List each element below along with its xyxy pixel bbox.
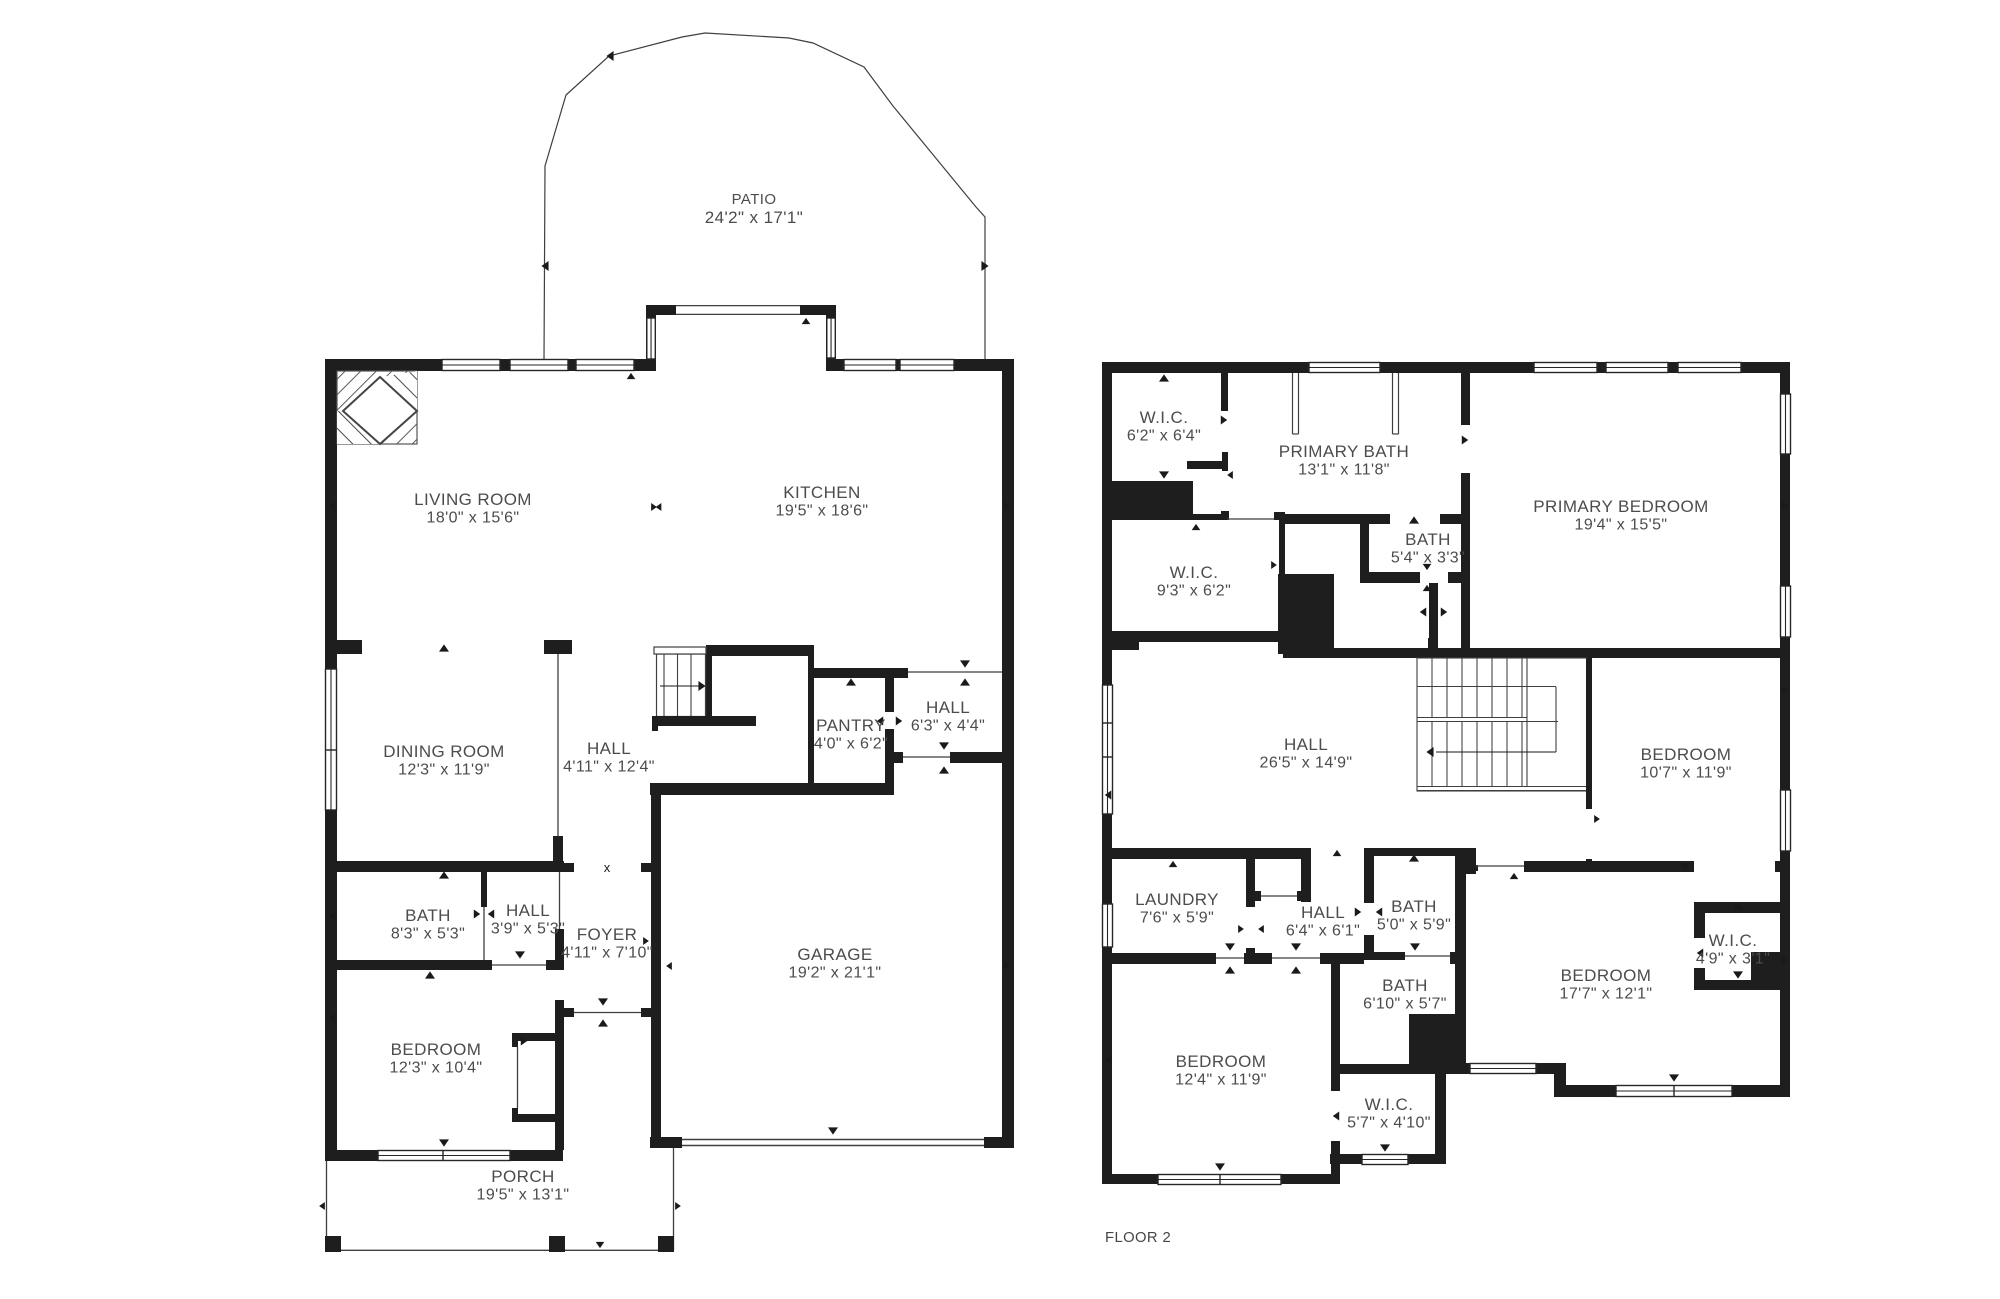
svg-text:19'5" x 13'1": 19'5" x 13'1" <box>477 1187 570 1204</box>
svg-text:18'0" x 15'6": 18'0" x 15'6" <box>427 510 520 527</box>
svg-text:BEDROOM: BEDROOM <box>1561 966 1652 985</box>
svg-text:9'3" x 6'2": 9'3" x 6'2" <box>1157 583 1231 600</box>
svg-text:BEDROOM: BEDROOM <box>1176 1052 1267 1071</box>
svg-text:12'3" x 10'4": 12'3" x 10'4" <box>390 1060 483 1077</box>
svg-text:BATH: BATH <box>1405 530 1451 549</box>
svg-text:6'3" x 4'4": 6'3" x 4'4" <box>911 718 985 735</box>
svg-text:4'11" x 12'4": 4'11" x 12'4" <box>563 759 655 776</box>
svg-text:FOYER: FOYER <box>577 925 638 944</box>
svg-text:8'3" x 5'3": 8'3" x 5'3" <box>391 926 465 943</box>
svg-text:4'11" x 7'10": 4'11" x 7'10" <box>561 945 653 962</box>
svg-text:FLOOR 2: FLOOR 2 <box>1105 1230 1171 1246</box>
svg-text:17'7" x 12'1": 17'7" x 12'1" <box>1560 986 1653 1003</box>
svg-text:12'3" x 11'9": 12'3" x 11'9" <box>398 762 490 779</box>
svg-text:x: x <box>604 860 611 875</box>
svg-text:LIVING ROOM: LIVING ROOM <box>414 490 532 509</box>
svg-text:KITCHEN: KITCHEN <box>783 483 860 502</box>
svg-text:BEDROOM: BEDROOM <box>1641 745 1732 764</box>
svg-text:HALL: HALL <box>1301 903 1345 922</box>
svg-text:12'4" x 11'9": 12'4" x 11'9" <box>1175 1072 1267 1089</box>
svg-text:7'6" x 5'9": 7'6" x 5'9" <box>1140 910 1214 927</box>
svg-text:3'9" x 5'3": 3'9" x 5'3" <box>491 921 565 938</box>
svg-text:6'2" x 6'4": 6'2" x 6'4" <box>1127 428 1201 445</box>
svg-text:24'2" x 17'1": 24'2" x 17'1" <box>705 208 803 227</box>
svg-text:PORCH: PORCH <box>491 1167 554 1186</box>
svg-text:13'1" x 11'8": 13'1" x 11'8" <box>1298 462 1390 479</box>
svg-text:HALL: HALL <box>506 901 550 920</box>
svg-text:W.I.C.: W.I.C. <box>1140 408 1189 427</box>
svg-text:10'7" x 11'9": 10'7" x 11'9" <box>1640 765 1732 782</box>
svg-text:BATH: BATH <box>405 906 451 925</box>
svg-text:PANTRY: PANTRY <box>816 716 886 735</box>
svg-text:HALL: HALL <box>587 739 631 758</box>
svg-text:4'0" x 6'2": 4'0" x 6'2" <box>814 736 888 753</box>
svg-text:HALL: HALL <box>1284 735 1328 754</box>
svg-text:W.I.C.: W.I.C. <box>1365 1095 1414 1114</box>
svg-text:LAUNDRY: LAUNDRY <box>1135 890 1219 909</box>
svg-text:DINING ROOM: DINING ROOM <box>383 742 505 761</box>
svg-text:GARAGE: GARAGE <box>797 945 872 964</box>
svg-text:BEDROOM: BEDROOM <box>391 1040 482 1059</box>
svg-text:W.I.C.: W.I.C. <box>1709 931 1758 950</box>
svg-text:5'0" x 5'9": 5'0" x 5'9" <box>1377 917 1451 934</box>
svg-text:5'4" x 3'3": 5'4" x 3'3" <box>1391 550 1465 567</box>
svg-text:19'4" x 15'5": 19'4" x 15'5" <box>1575 517 1668 534</box>
svg-text:W.I.C.: W.I.C. <box>1170 563 1219 582</box>
svg-text:BATH: BATH <box>1391 897 1437 916</box>
svg-text:PRIMARY BATH: PRIMARY BATH <box>1279 442 1409 461</box>
svg-text:PRIMARY BEDROOM: PRIMARY BEDROOM <box>1533 497 1708 516</box>
svg-text:4'9" x 3'1": 4'9" x 3'1" <box>1696 951 1770 968</box>
svg-text:BATH: BATH <box>1382 976 1428 995</box>
svg-text:HALL: HALL <box>926 698 970 717</box>
svg-text:26'5" x 14'9": 26'5" x 14'9" <box>1260 755 1353 772</box>
svg-text:PATIO: PATIO <box>732 191 777 208</box>
svg-text:6'4" x 6'1": 6'4" x 6'1" <box>1286 923 1360 940</box>
svg-text:19'2" x 21'1": 19'2" x 21'1" <box>789 965 882 982</box>
svg-text:6'10" x 5'7": 6'10" x 5'7" <box>1363 996 1447 1013</box>
svg-text:5'7" x 4'10": 5'7" x 4'10" <box>1347 1115 1431 1132</box>
svg-text:19'5" x 18'6": 19'5" x 18'6" <box>776 503 869 520</box>
